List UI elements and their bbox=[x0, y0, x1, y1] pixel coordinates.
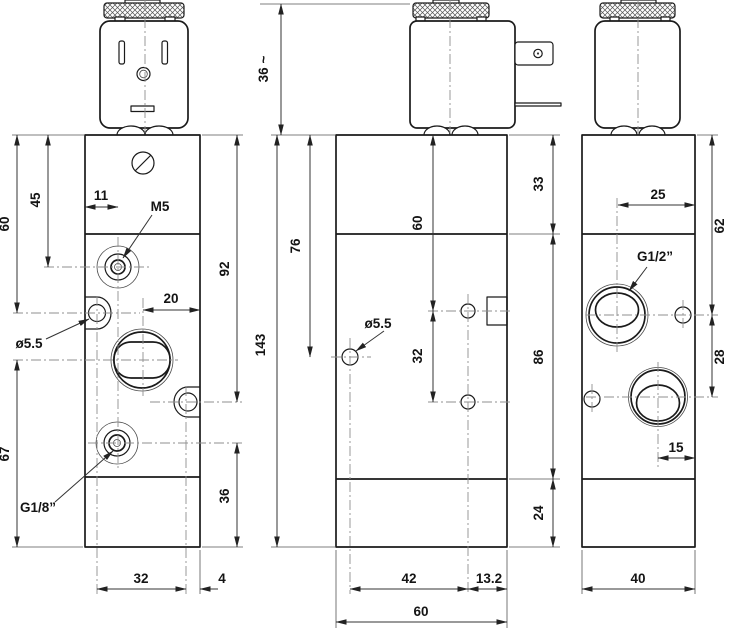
dim-label-25: 25 bbox=[650, 187, 666, 202]
side-body-fill bbox=[336, 135, 507, 547]
connector-slot bbox=[131, 106, 154, 112]
dim-label-4: 4 bbox=[218, 571, 226, 586]
knurled-cap bbox=[413, 3, 489, 18]
knurled-cap bbox=[104, 3, 184, 18]
dim-label-24: 24 bbox=[531, 505, 546, 521]
dim-label-g18: G1/8” bbox=[20, 500, 56, 515]
knurled-cap bbox=[600, 3, 675, 18]
dim-label-143: 143 bbox=[253, 333, 268, 356]
dim-label-32: 32 bbox=[133, 571, 148, 586]
dim-label-32v: 32 bbox=[410, 348, 425, 363]
dim-label-33: 33 bbox=[531, 176, 546, 192]
dim-label-m5: M5 bbox=[151, 199, 170, 214]
dim-label-76: 76 bbox=[288, 238, 303, 254]
back-solenoid bbox=[595, 0, 680, 135]
dim-label-36: 36 bbox=[217, 488, 232, 504]
front-view: 60 45 11 M5 92 20 ø5.5 67 G1/8” 36 32 4 bbox=[0, 0, 243, 594]
dim-label-11: 11 bbox=[94, 188, 109, 203]
dia55-leader bbox=[46, 319, 89, 339]
connector-slot bbox=[119, 41, 125, 64]
dim-label-67: 67 bbox=[0, 446, 12, 461]
dim-label-60v: 60 bbox=[410, 215, 425, 230]
dim-label-20: 20 bbox=[163, 291, 178, 306]
dim-label-45: 45 bbox=[28, 192, 43, 208]
dim-label-dia55: ø5.5 bbox=[15, 336, 43, 351]
connector-slot bbox=[162, 41, 168, 64]
dim-label-g12: G1/2” bbox=[637, 249, 673, 264]
side-solenoid bbox=[410, 0, 561, 135]
back-view: 25 62 G1/2” 28 15 40 bbox=[582, 0, 727, 594]
dim-label-60: 60 bbox=[0, 216, 12, 231]
dim-label-60b: 60 bbox=[413, 604, 428, 619]
dim-label-13-2: 13.2 bbox=[476, 571, 502, 586]
valve-dimensional-drawing: 60 45 11 M5 92 20 ø5.5 67 G1/8” 36 32 4 bbox=[0, 0, 739, 631]
dim-label-62: 62 bbox=[712, 218, 727, 233]
dim-label-92: 92 bbox=[217, 261, 232, 276]
dim-label-86: 86 bbox=[531, 349, 546, 365]
dim-label-15: 15 bbox=[668, 440, 684, 455]
front-solenoid bbox=[100, 0, 188, 135]
drawing-canvas: 60 45 11 M5 92 20 ø5.5 67 G1/8” 36 32 4 bbox=[0, 0, 739, 631]
dim-label-36tilde: 36 ~ bbox=[256, 56, 271, 83]
coil-body bbox=[595, 21, 680, 128]
dim-label-dia55: ø5.5 bbox=[364, 316, 392, 331]
back-body-fill bbox=[582, 135, 695, 547]
dim-label-42: 42 bbox=[401, 571, 416, 586]
dim-label-28: 28 bbox=[712, 349, 727, 365]
connector-pin bbox=[515, 103, 561, 106]
dim-label-40: 40 bbox=[630, 571, 645, 586]
coil-body bbox=[410, 21, 515, 128]
side-view: 36 ~ 143 76 60 33 ø5.5 32 86 24 42 13.2 … bbox=[253, 0, 561, 628]
